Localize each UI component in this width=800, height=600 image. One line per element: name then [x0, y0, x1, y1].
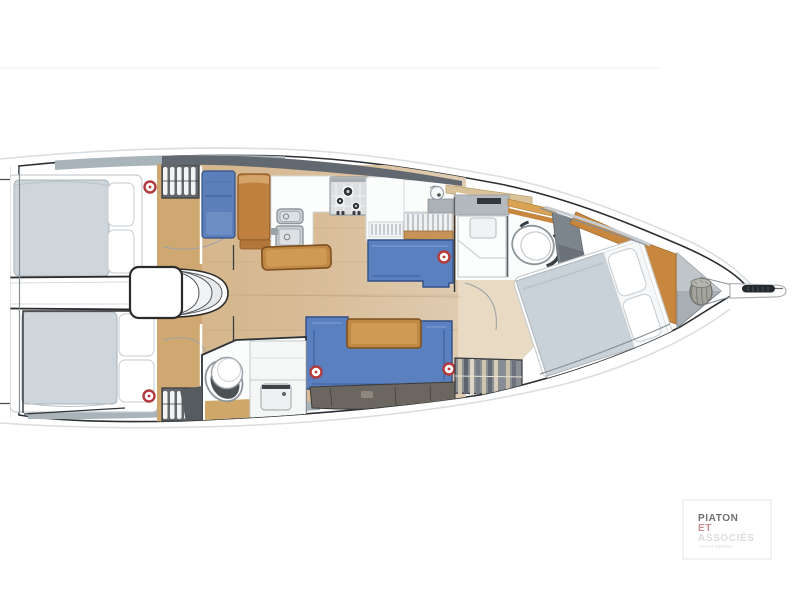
svg-text:YACHT DESIGN: YACHT DESIGN [699, 544, 732, 549]
svg-text:ASSOCIÉS: ASSOCIÉS [698, 531, 754, 544]
